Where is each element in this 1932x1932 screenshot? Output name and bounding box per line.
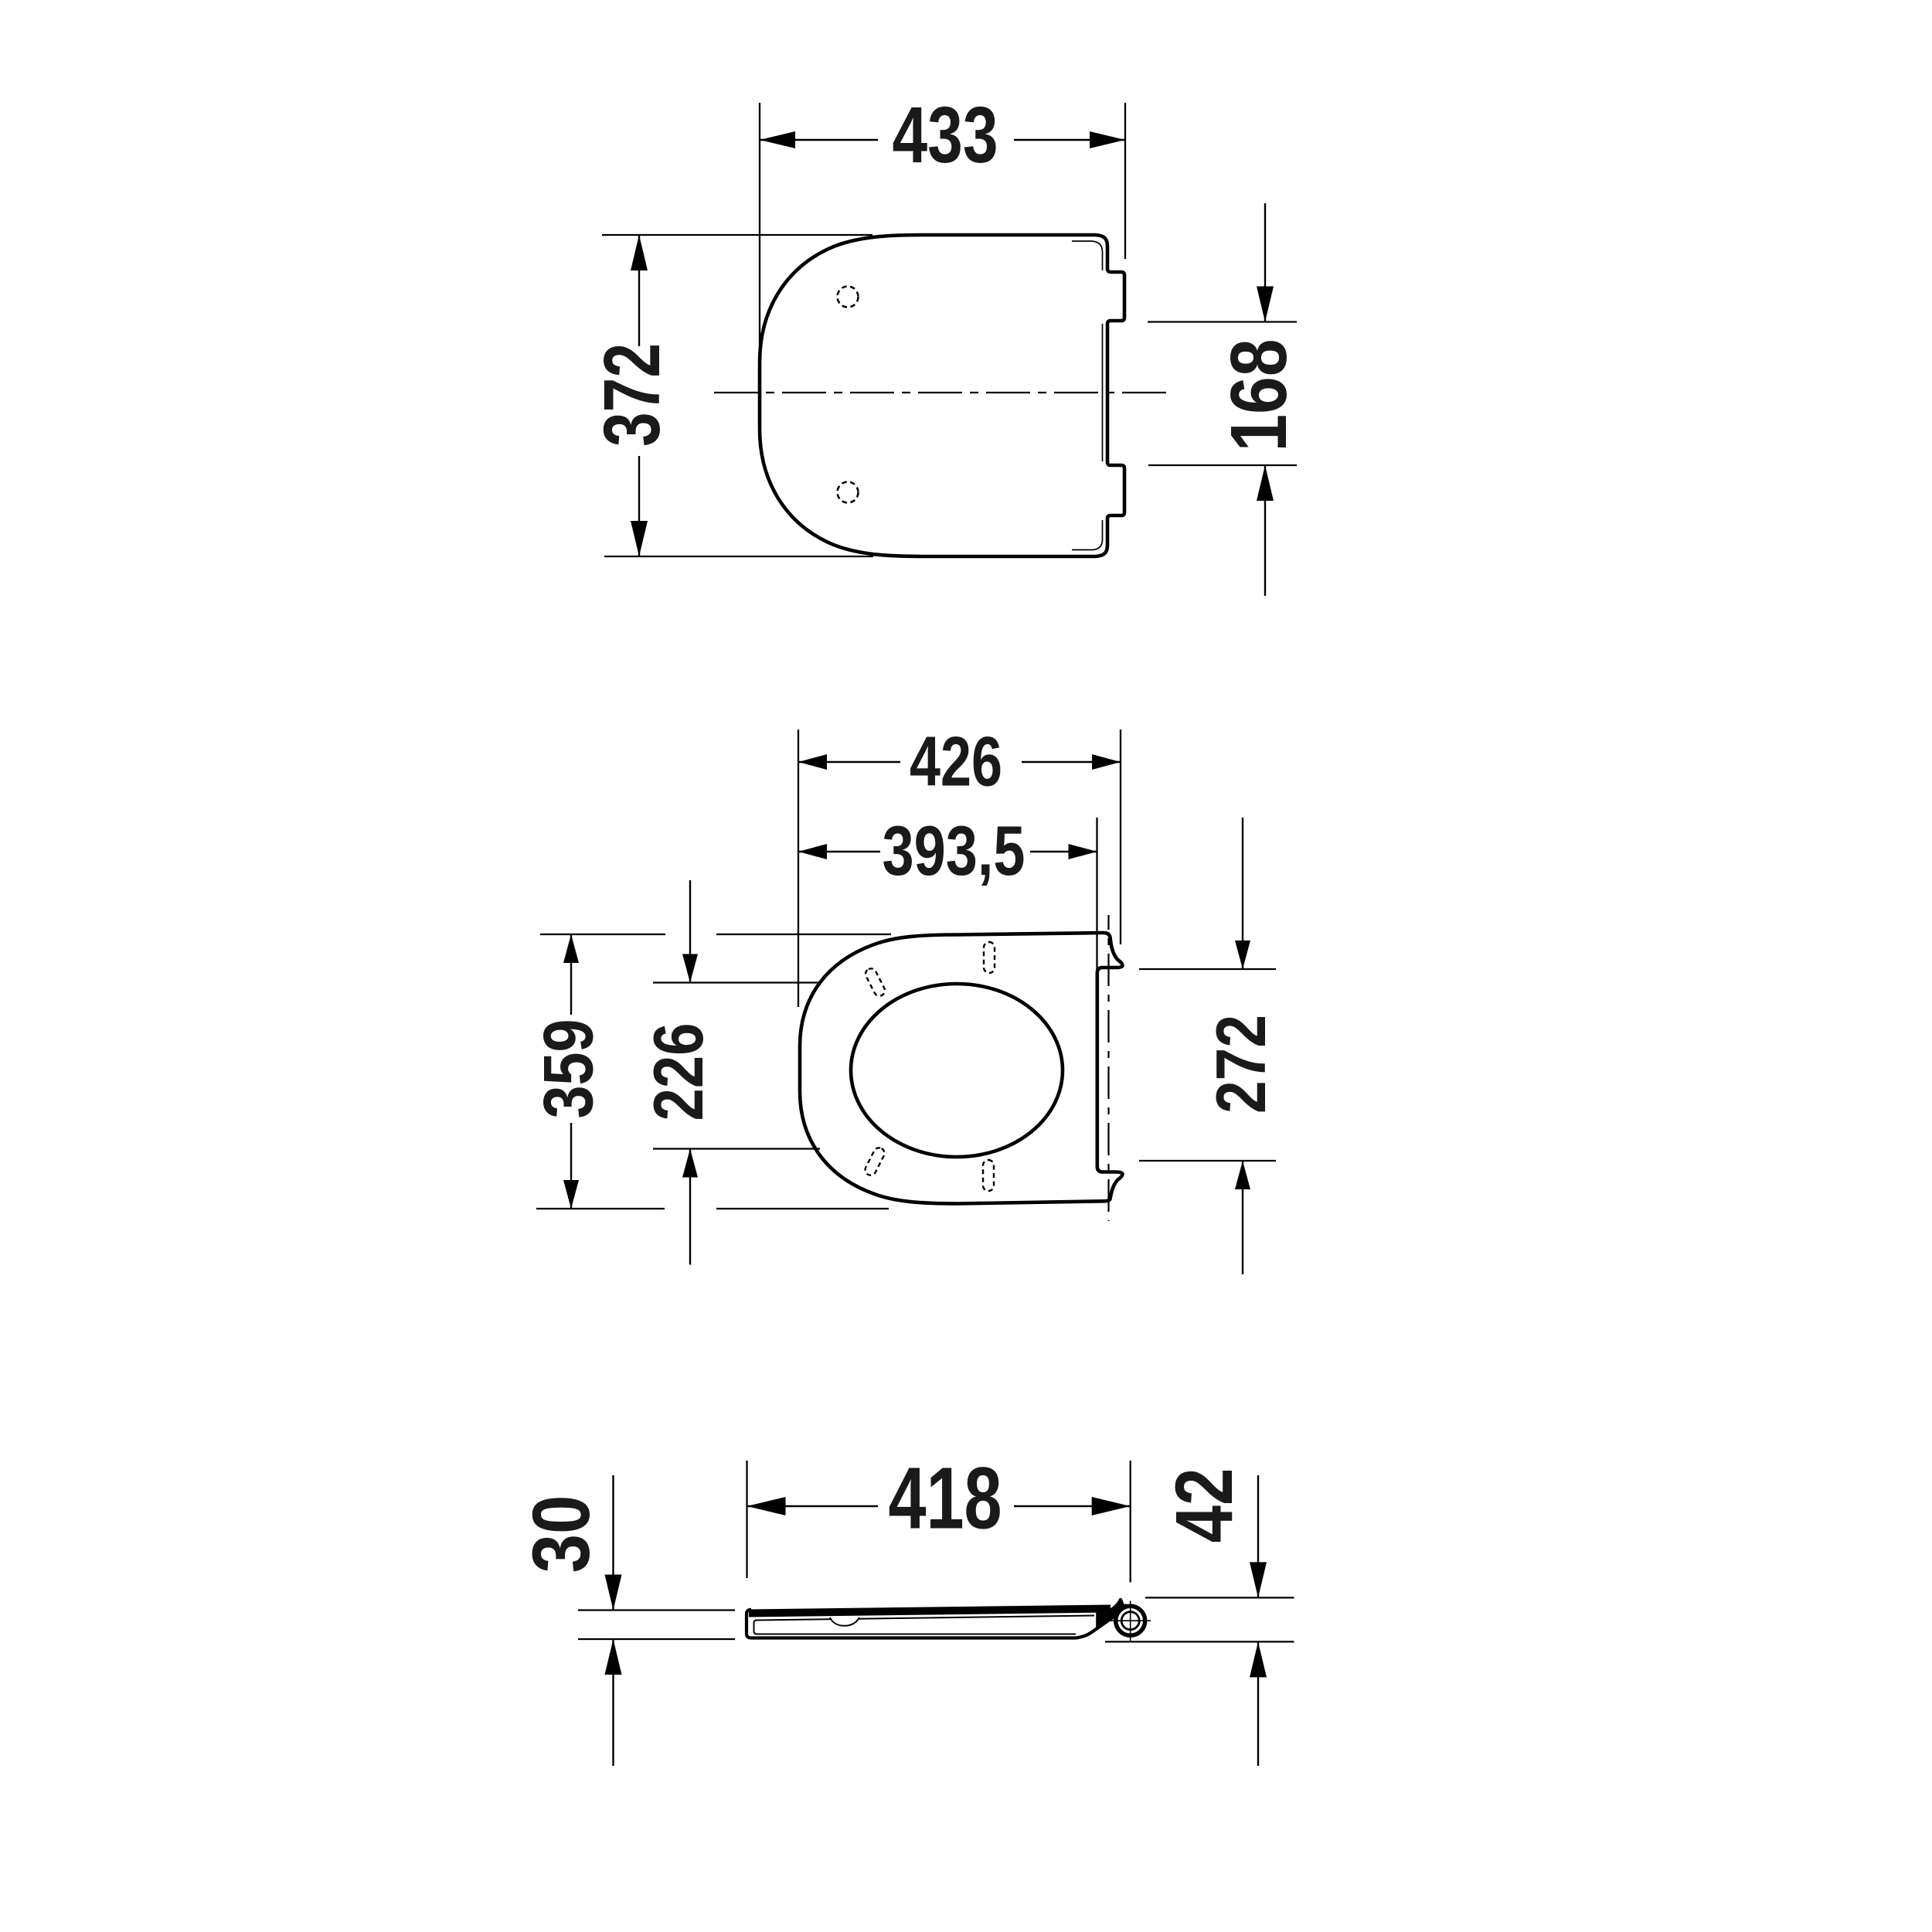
svg-text:30: 30	[516, 1495, 607, 1573]
svg-text:426: 426	[910, 723, 1002, 801]
svg-text:42: 42	[1159, 1468, 1250, 1543]
svg-text:372: 372	[587, 343, 676, 447]
svg-text:393,5: 393,5	[883, 812, 1026, 890]
svg-text:226: 226	[640, 1023, 718, 1121]
svg-text:418: 418	[889, 1450, 1002, 1547]
svg-text:359: 359	[530, 1019, 608, 1119]
svg-text:272: 272	[1202, 1015, 1281, 1114]
svg-text:168: 168	[1214, 339, 1303, 452]
svg-text:433: 433	[893, 90, 998, 179]
